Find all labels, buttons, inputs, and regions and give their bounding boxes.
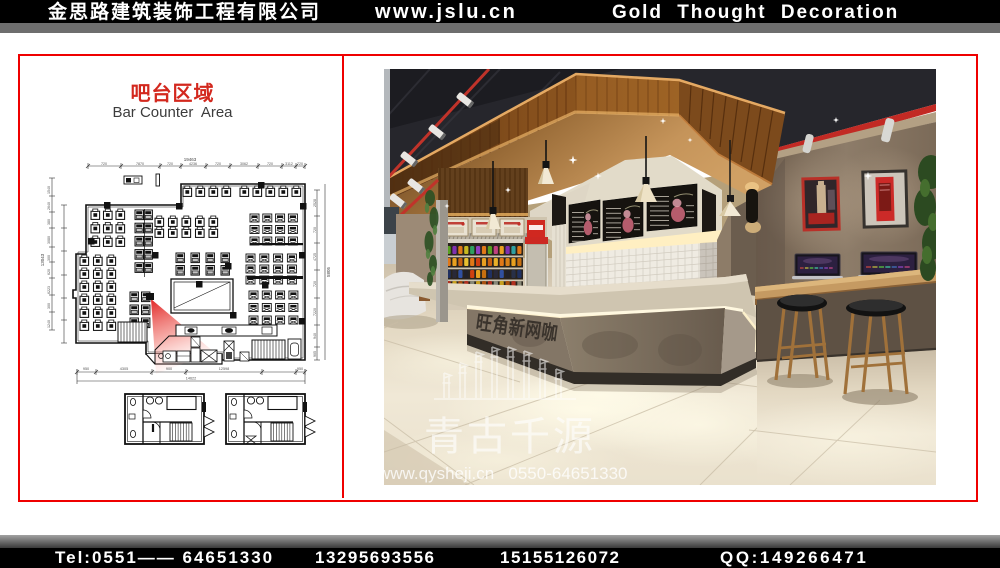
svg-text:950: 950 — [83, 367, 89, 371]
svg-text:13043: 13043 — [40, 253, 45, 266]
svg-text:1540: 1540 — [47, 186, 51, 194]
svg-text:青古千源: 青古千源 — [424, 415, 596, 459]
svg-text:720: 720 — [313, 281, 317, 287]
svg-text:2528: 2528 — [313, 199, 317, 207]
svg-text:720: 720 — [167, 162, 173, 166]
svg-text:300: 300 — [47, 303, 51, 309]
svg-text:720: 720 — [215, 162, 221, 166]
svg-text:12598: 12598 — [219, 367, 230, 371]
svg-text:720: 720 — [101, 162, 107, 166]
svg-text:14622: 14622 — [186, 377, 197, 381]
svg-text:720: 720 — [313, 227, 317, 233]
svg-text:3112: 3112 — [285, 162, 293, 166]
svg-text:720: 720 — [297, 162, 303, 166]
svg-text:940: 940 — [313, 333, 317, 339]
svg-text:3080: 3080 — [47, 236, 51, 244]
svg-text:905: 905 — [313, 351, 317, 357]
svg-text:www.qysheji.cn 0550-64651330: www.qysheji.cn 0550-64651330 — [384, 464, 628, 483]
svg-text:7220: 7220 — [313, 308, 317, 316]
svg-text:4305: 4305 — [120, 367, 128, 371]
svg-text:1240: 1240 — [47, 320, 51, 328]
svg-text:7870: 7870 — [136, 162, 144, 166]
svg-text:3062: 3062 — [240, 162, 248, 166]
svg-text:5805: 5805 — [326, 266, 331, 277]
svg-text:720: 720 — [267, 162, 273, 166]
svg-text:900: 900 — [166, 367, 172, 371]
svg-text:6223: 6223 — [47, 286, 51, 294]
svg-text:2640: 2640 — [47, 202, 51, 210]
svg-text:620: 620 — [47, 269, 51, 275]
svg-text:950: 950 — [297, 367, 303, 371]
svg-text:380: 380 — [47, 219, 51, 225]
svg-text:4725: 4725 — [313, 253, 317, 261]
svg-text:4236: 4236 — [189, 162, 197, 166]
svg-text:300: 300 — [47, 255, 51, 261]
